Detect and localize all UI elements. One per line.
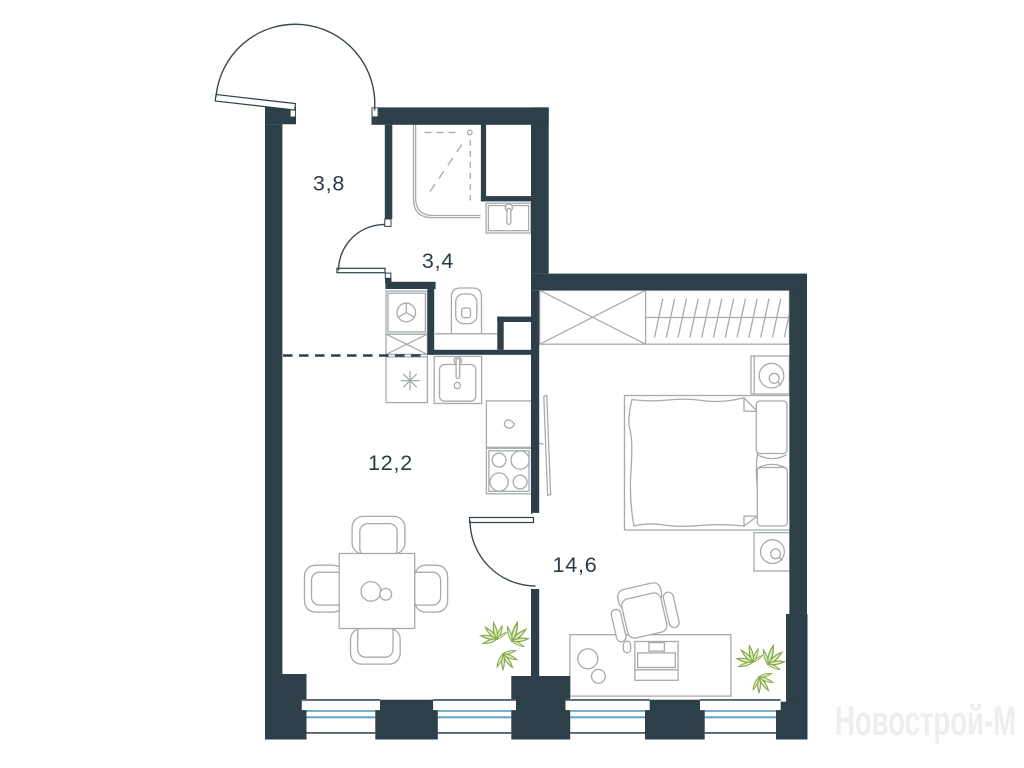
svg-text:3,4: 3,4: [422, 249, 454, 273]
svg-text:14,6: 14,6: [552, 553, 597, 577]
svg-text:3,8: 3,8: [313, 172, 345, 196]
svg-text:Новострой-М: Новострой-М: [835, 697, 1016, 744]
svg-text:12,2: 12,2: [368, 451, 413, 475]
